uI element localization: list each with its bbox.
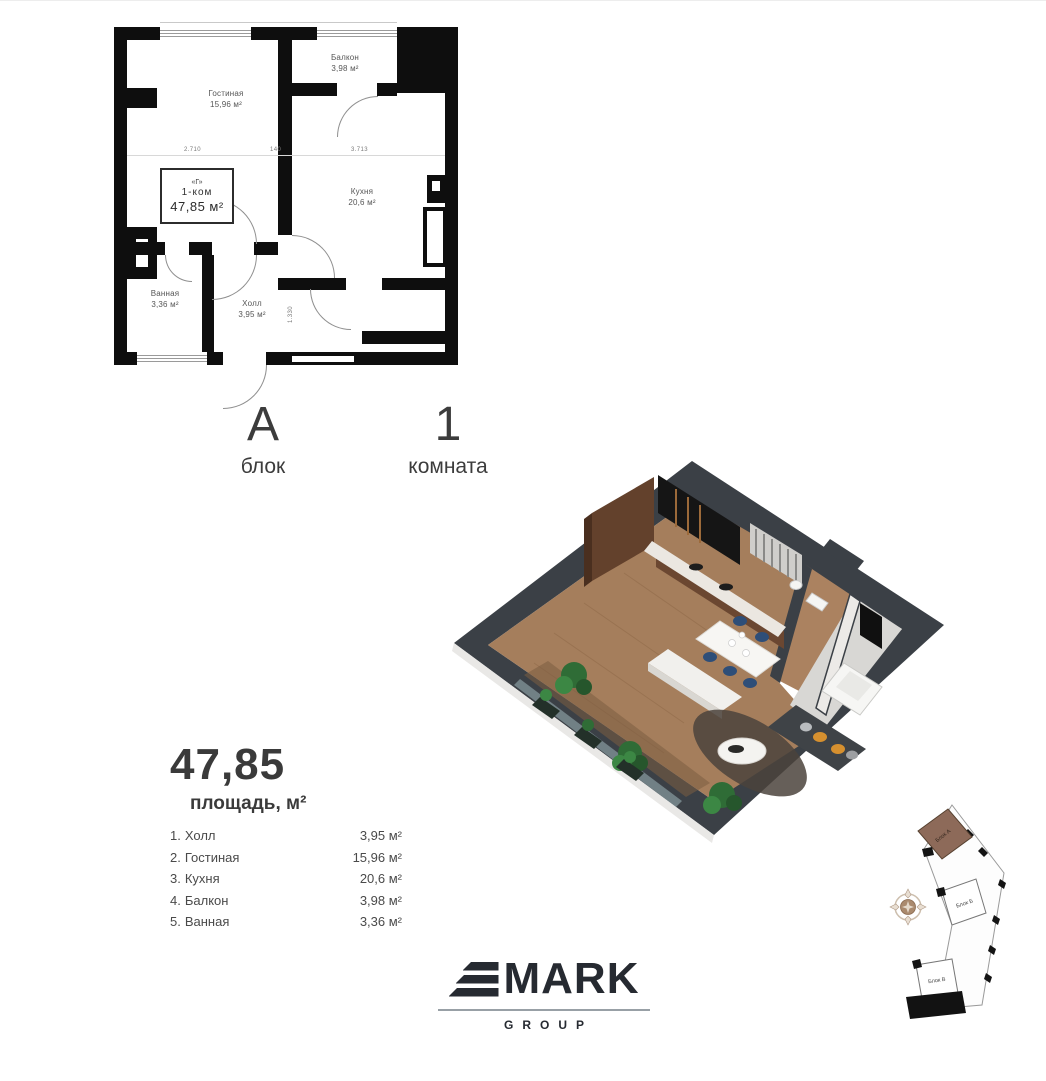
block-caption: А блок [218, 401, 308, 479]
window-living [160, 27, 251, 40]
summary-row: 2.Гостиная 15,96 м² [170, 847, 402, 869]
unit-info-box: «Г» 1-ком 47,85 м² [160, 168, 234, 224]
brochure-page: 2.710 140 3.713 1.330 «Г» 1-ком 47,85 м²… [0, 0, 1046, 1081]
logo-divider [438, 1009, 650, 1011]
summary-row: 4.Балкон 3,98 м² [170, 890, 402, 912]
dim-label-vertical: 1.330 [288, 306, 294, 323]
logo-e-bars-icon [449, 962, 499, 997]
unit-type: 1-ком [182, 187, 213, 198]
block-letter: А [218, 401, 308, 449]
room-label-living: Гостиная15,96 м² [208, 89, 243, 111]
logo-mark-text: MARK [504, 957, 640, 1001]
site-bottom-wall [906, 991, 966, 1019]
room-label-bathroom: Ванная3,36 м² [151, 289, 180, 311]
compass-icon [890, 889, 926, 925]
door-arc-corridor [310, 289, 351, 330]
room-count: 1 [398, 401, 498, 449]
room-label-kitchen: Кухня20,6 м² [348, 187, 375, 209]
room-label-hall: Холл3,95 м² [238, 299, 265, 321]
site-plan: Блок А Блок Б Блок В [872, 793, 1044, 1028]
toilet [790, 581, 802, 590]
area-summary: 47,85 площадь, м² 1.Холл 3,95 м² 2.Гости… [170, 743, 402, 933]
door-arc-living [212, 255, 257, 300]
emark-logo: MARK GROUP [428, 957, 660, 1032]
window-balcony [317, 27, 397, 40]
summary-row: 5.Ванная 3,36 м² [170, 911, 402, 933]
room-label-balcony: Балкон3,98 м² [331, 53, 359, 75]
unit-code: «Г» [191, 179, 202, 186]
summary-row: 1.Холл 3,95 м² [170, 825, 402, 847]
door-arc-bathroom [165, 255, 192, 282]
floor-plan-2d: 2.710 140 3.713 1.330 «Г» 1-ком 47,85 м²… [114, 27, 458, 365]
block-word: блок [218, 455, 308, 479]
window-bathroom [137, 352, 207, 365]
logo-group-text: GROUP [428, 1018, 660, 1032]
door-arc-kitchen [292, 235, 335, 278]
dim-label: 140 [270, 147, 281, 153]
unit-area: 47,85 м² [170, 199, 223, 214]
dimension-line [127, 155, 445, 156]
area-caption: площадь, м² [190, 793, 402, 815]
door-arc-balcony [337, 96, 378, 137]
apartment-3d-render [424, 453, 964, 843]
vent-shaft [423, 207, 447, 267]
total-area: 47,85 [170, 743, 402, 787]
balcony-glazing-line [160, 22, 397, 23]
dim-label: 3.713 [351, 147, 368, 153]
dim-label: 2.710 [184, 147, 201, 153]
summary-row: 3.Кухня 20,6 м² [170, 868, 402, 890]
